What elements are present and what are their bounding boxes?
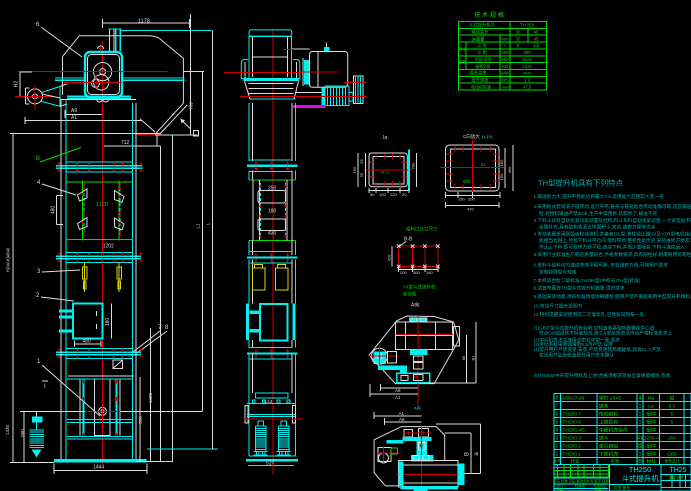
- svg-text:审核: 审核: [557, 487, 564, 491]
- svg-text:30: 30: [516, 30, 521, 35]
- svg-text:1.2: 1.2: [524, 78, 531, 83]
- svg-text:600: 600: [463, 179, 471, 184]
- svg-text:TH250: TH250: [629, 465, 652, 474]
- svg-text:9.0: 9.0: [669, 404, 676, 410]
- svg-text:MM: MM: [501, 71, 509, 76]
- svg-text:55: 55: [359, 172, 364, 177]
- svg-text:1: 1: [639, 412, 642, 418]
- svg-text:300: 300: [413, 270, 420, 275]
- svg-text:1.3: 1.3: [533, 43, 540, 48]
- svg-text:1178: 1178: [138, 18, 150, 24]
- svg-text:技 术 规 格: 技 术 规 格: [474, 11, 505, 19]
- svg-text:合理补充,具有结构紧凑占地面积小,安装,维修方便等优点: 合理补充,具有结构紧凑占地面积小,安装,维修方便等优点: [539, 224, 656, 231]
- svg-text:数: 数: [638, 458, 642, 464]
- svg-text:4840: 4840: [523, 71, 533, 76]
- svg-text:批准: 批准: [595, 487, 602, 491]
- svg-text:mm: mm: [501, 36, 509, 41]
- svg-text:B1: B1: [471, 355, 476, 361]
- svg-text:20: 20: [402, 192, 407, 197]
- svg-text:铝: 铝: [670, 395, 675, 402]
- svg-text:A8: A8: [395, 388, 401, 393]
- svg-text:180: 180: [268, 209, 277, 215]
- svg-text:KN: KN: [502, 64, 508, 69]
- svg-text:10.符合尺寸图示说明书: 10.符合尺寸图示说明书: [534, 303, 583, 310]
- svg-text:符合GB图纸技术标准规范,施工&安装规范须符合严格标准要求上: 符合GB图纸技术标准规范,施工&安装规范须符合严格标准要求上: [539, 330, 672, 337]
- svg-text:能相当优越上,停机下料斗平行间,落料带停,整机性能优良,安装: 能相当优越上,停机下料斗平行间,落料带停,整机性能优良,安装维修方便及工具衔接停…: [539, 237, 691, 244]
- svg-text:材料: 材料: [647, 458, 656, 465]
- svg-text:A9: A9: [71, 108, 77, 114]
- svg-text:A向: A向: [411, 302, 419, 309]
- svg-text:8.适宜布置在TH型斗式提升机数量,须符要求: 8.适宜布置在TH型斗式提升机数量,须符要求: [534, 285, 625, 292]
- svg-text:TH250.6: TH250.6: [563, 420, 582, 426]
- svg-text:5: 5: [556, 420, 559, 426]
- svg-text:Ma: Ma: [648, 396, 655, 402]
- svg-text:标准化: 标准化: [575, 484, 586, 489]
- svg-text:上链区段: 上链区段: [599, 419, 618, 426]
- svg-text:≥320: ≥320: [522, 64, 532, 69]
- svg-text:TH 250: TH 250: [520, 23, 535, 28]
- svg-text:N-12: N-12: [381, 170, 390, 175]
- svg-text:7: 7: [556, 404, 559, 410]
- svg-text:B: B: [36, 156, 40, 162]
- svg-text:120: 120: [379, 192, 386, 197]
- svg-text:TH250.2: TH250.2: [563, 444, 582, 450]
- svg-text:斗式提升机号: 斗式提升机号: [469, 22, 495, 29]
- svg-text:电动机转速: 电动机转速: [471, 83, 491, 89]
- svg-text:55: 55: [359, 159, 364, 164]
- svg-text:Ia: Ia: [383, 135, 387, 141]
- svg-text:MM: MM: [501, 50, 509, 55]
- svg-text:200: 200: [411, 162, 416, 169]
- svg-text:La: La: [648, 404, 654, 410]
- svg-text:2: 2: [556, 444, 559, 450]
- svg-text:A1: A1: [395, 395, 401, 400]
- svg-text:Y4型斗式提升机: Y4型斗式提升机: [403, 284, 436, 291]
- svg-text:C向放大: C向放大: [463, 133, 480, 140]
- svg-text:单件总计: 单件总计: [664, 459, 679, 464]
- svg-text:30: 30: [516, 36, 521, 41]
- svg-text:1202: 1202: [103, 244, 114, 250]
- svg-text:TH250.1: TH250.1: [563, 452, 582, 458]
- svg-text:组件: 组件: [646, 427, 656, 434]
- svg-text:运载量: 运载量: [472, 35, 486, 42]
- svg-text:45: 45: [534, 30, 539, 35]
- svg-text:90: 90: [370, 192, 375, 197]
- svg-text:TH型提升机具有下列特点: TH型提升机具有下列特点: [538, 178, 623, 188]
- svg-text:标记 处数 分区 更改文件号 签字 日期: 标记 处数 分区 更改文件号 签字 日期: [553, 479, 609, 484]
- svg-text:TH250.4/5: TH250.4/5: [563, 428, 586, 434]
- svg-text:180: 180: [105, 318, 111, 327]
- svg-text:1: 1: [556, 452, 559, 458]
- svg-text:H(MAX)4840: H(MAX)4840: [6, 247, 11, 272]
- svg-text:(5)TH250(中央提升物料及上述)合格须要求签发监督质量: (5)TH250(中央提升物料及上述)合格须要求签发监督质量细则 签收.: [534, 372, 672, 379]
- svg-text:定做特殊型号规格: 定做特殊型号规格: [539, 269, 577, 276]
- svg-text:4.传动装置采用圆弧齿轮减速机,并备有(ZL型,滚柱逆止器): 4.传动装置采用圆弧齿轮减速机,并备有(ZL型,滚柱逆止器)以及YZR型电机减速…: [534, 231, 691, 238]
- svg-text:提升速度: 提升速度: [471, 77, 489, 84]
- svg-text:1.输送能力大,提升平稳能达到最大4.8,适用能力范围较大变: 1.输送能力大,提升平稳能达到最大4.8,适用能力范围较大变一倍: [534, 193, 665, 200]
- svg-text:粒,状物料输送严禁20米,生产中常用拆,装卸修了,输送不易: 粒,状物料输送严禁20米,生产中常用拆,装卸修了,输送不易: [539, 210, 658, 217]
- svg-text:150: 150: [458, 197, 465, 202]
- svg-text:11.特别提醒安装使用前二次灌浆孔,应预留间隙每一处: 11.特别提醒安装使用前二次灌浆孔,应预留间隙每一处: [534, 311, 645, 318]
- svg-text:l: l: [505, 43, 506, 48]
- svg-text:1: 1: [639, 420, 642, 426]
- svg-text:中部机壳组件: 中部机壳组件: [599, 427, 628, 434]
- svg-text:GB827-86: GB827-86: [563, 396, 585, 402]
- svg-text:150: 150: [426, 270, 433, 275]
- svg-text:7.本机适合粒二级标准,TH250型(中标号)TH型(标准): 7.本机适合粒二级标准,TH250型(中标号)TH型(标准): [534, 277, 641, 284]
- svg-text:8: 8: [556, 396, 559, 402]
- svg-text:20x: 20x: [668, 436, 676, 442]
- svg-text:斗式提升机: 斗式提升机: [621, 473, 659, 483]
- svg-text:提升高度: 提升高度: [469, 70, 487, 77]
- svg-text:480: 480: [51, 206, 57, 215]
- svg-text:4: 4: [556, 428, 559, 434]
- svg-text:6: 6: [556, 412, 559, 418]
- svg-text:A1: A1: [399, 411, 405, 416]
- svg-text:破断负荷: 破断负荷: [475, 64, 490, 69]
- svg-text:组件: 组件: [646, 451, 656, 458]
- svg-text:变更用户监督检查提升用户签字确认: 变更用户监督检查提升用户签字确认: [539, 352, 614, 359]
- svg-text:GB8: GB8: [667, 452, 677, 458]
- svg-text:斗 宽: 斗 宽: [477, 42, 487, 49]
- svg-text:TH250.3: TH250.3: [563, 436, 582, 442]
- svg-text:6.进料斗给料均匀连续快速平稳可靠,: 6.进料斗给料均匀连续快速平稳可靠, 安装维修方便,可按用户要求: [534, 262, 669, 269]
- svg-text:输送高充: 输送高充: [471, 29, 489, 36]
- svg-text:85: 85: [461, 355, 466, 360]
- svg-text:420: 420: [387, 254, 392, 261]
- svg-text:MM: MM: [501, 57, 509, 62]
- svg-text:牵引链组: 牵引链组: [599, 443, 618, 450]
- svg-text:3: 3: [556, 436, 559, 442]
- svg-text:链斗: 链斗: [599, 435, 609, 442]
- svg-text:45: 45: [534, 36, 539, 41]
- svg-text:组: 组: [637, 443, 642, 450]
- svg-text:共 张 第 张: 共 张 第 张: [614, 485, 631, 490]
- svg-text:3.下料斗具有自动张紧功能装置及结构,料斗布料自动张紧适量,: 3.下料斗具有自动张紧功能装置及结构,料斗布料自动张紧适量,一大宽度益不同可选,…: [534, 217, 691, 224]
- svg-text:安装图: 安装图: [403, 291, 417, 298]
- svg-text:序号: 序号: [553, 458, 561, 464]
- svg-text:组件: 组件: [646, 411, 656, 418]
- svg-text:470: 470: [467, 207, 474, 212]
- svg-text:5: 5: [671, 412, 674, 418]
- svg-text:H2: H2: [14, 81, 20, 88]
- svg-text:TH25: TH25: [669, 467, 686, 474]
- svg-text:M/S: M/S: [501, 78, 509, 83]
- svg-text:150: 150: [499, 159, 504, 166]
- svg-text:5.采用行业标准生产制造质量符合,严格参数要求,具有刚性好,: 5.采用行业标准生产制造质量符合,严格参数要求,具有刚性好,耐磨耐用可靠性较高等…: [534, 251, 691, 258]
- svg-text:47.5: 47.5: [523, 84, 532, 89]
- svg-text:1335: 1335: [5, 424, 10, 435]
- svg-text:480: 480: [523, 50, 531, 55]
- svg-text:铆钉 20X5: 铆钉 20X5: [599, 395, 621, 402]
- svg-text:给料口法兰尺寸: 给料口法兰尺寸: [406, 226, 438, 233]
- svg-text:9.基础安装地面,须符标准预埋地脚螺栓,使用严禁严重超载用中: 9.基础安装地面,须符标准预埋地脚螺栓,使用严禁严重超载用中型提升机物料,须按规…: [534, 293, 691, 300]
- svg-text:代号: 代号: [571, 458, 580, 465]
- svg-text:250: 250: [268, 186, 277, 192]
- svg-text:2.采用板式套筒滚子链传动,运行平稳,链条与链轮啮合传动准确: 2.采用板式套筒滚子链传动,运行平稳,链条与链轮啮合传动准确可靠,适宜输送堆积密…: [534, 203, 691, 210]
- svg-text:200: 200: [400, 270, 407, 275]
- svg-text:Q235-A: Q235-A: [643, 436, 660, 442]
- svg-text:1120: 1120: [96, 202, 108, 208]
- svg-text:B: B: [465, 452, 471, 456]
- svg-text:144: 144: [265, 399, 273, 405]
- svg-text:65: 65: [481, 162, 486, 167]
- svg-text:1: 1: [639, 452, 642, 458]
- svg-text:5: 5: [671, 420, 674, 426]
- svg-text:150: 150: [499, 173, 504, 180]
- svg-text:下部机壳: 下部机壳: [599, 451, 618, 458]
- svg-text:重量 比例: 重量 比例: [669, 475, 684, 480]
- svg-text:组件: 组件: [646, 419, 656, 426]
- svg-text:斗 距: 斗 距: [477, 50, 487, 55]
- svg-text:430: 430: [268, 231, 277, 237]
- svg-text:节距x滚径: 节距x滚径: [474, 57, 491, 62]
- svg-text:组件: 组件: [646, 443, 656, 450]
- svg-text:120: 120: [390, 192, 397, 197]
- svg-text:链条: 链条: [599, 403, 609, 410]
- svg-text:L1: L1: [196, 223, 201, 229]
- svg-text:传动链轮: 传动链轮: [599, 411, 618, 418]
- svg-text:200: 200: [468, 197, 475, 202]
- svg-text:停止上下料,即可检修方便平稳,连续下料,并根少量噪音,下料斗: 停止上下料,即可检修方便平稳,连续下料,并根少量噪音,下料斗连续运入: [539, 244, 685, 251]
- svg-text:4: 4: [639, 396, 642, 402]
- svg-text:160: 160: [352, 166, 357, 173]
- svg-text:链条: 链条: [458, 59, 466, 65]
- svg-text:TH250.7: TH250.7: [563, 412, 582, 418]
- svg-text:名称: 名称: [611, 458, 620, 465]
- svg-text:712: 712: [121, 140, 130, 146]
- svg-text:A向: A向: [414, 405, 421, 411]
- svg-text:(1:10): (1:10): [482, 134, 493, 139]
- svg-text:1: 1: [639, 404, 642, 410]
- svg-text:r/min: r/min: [502, 85, 510, 89]
- svg-text:料斗: 料斗: [458, 46, 466, 52]
- svg-text:38x95: 38x95: [522, 57, 534, 62]
- svg-text:450: 450: [507, 166, 512, 173]
